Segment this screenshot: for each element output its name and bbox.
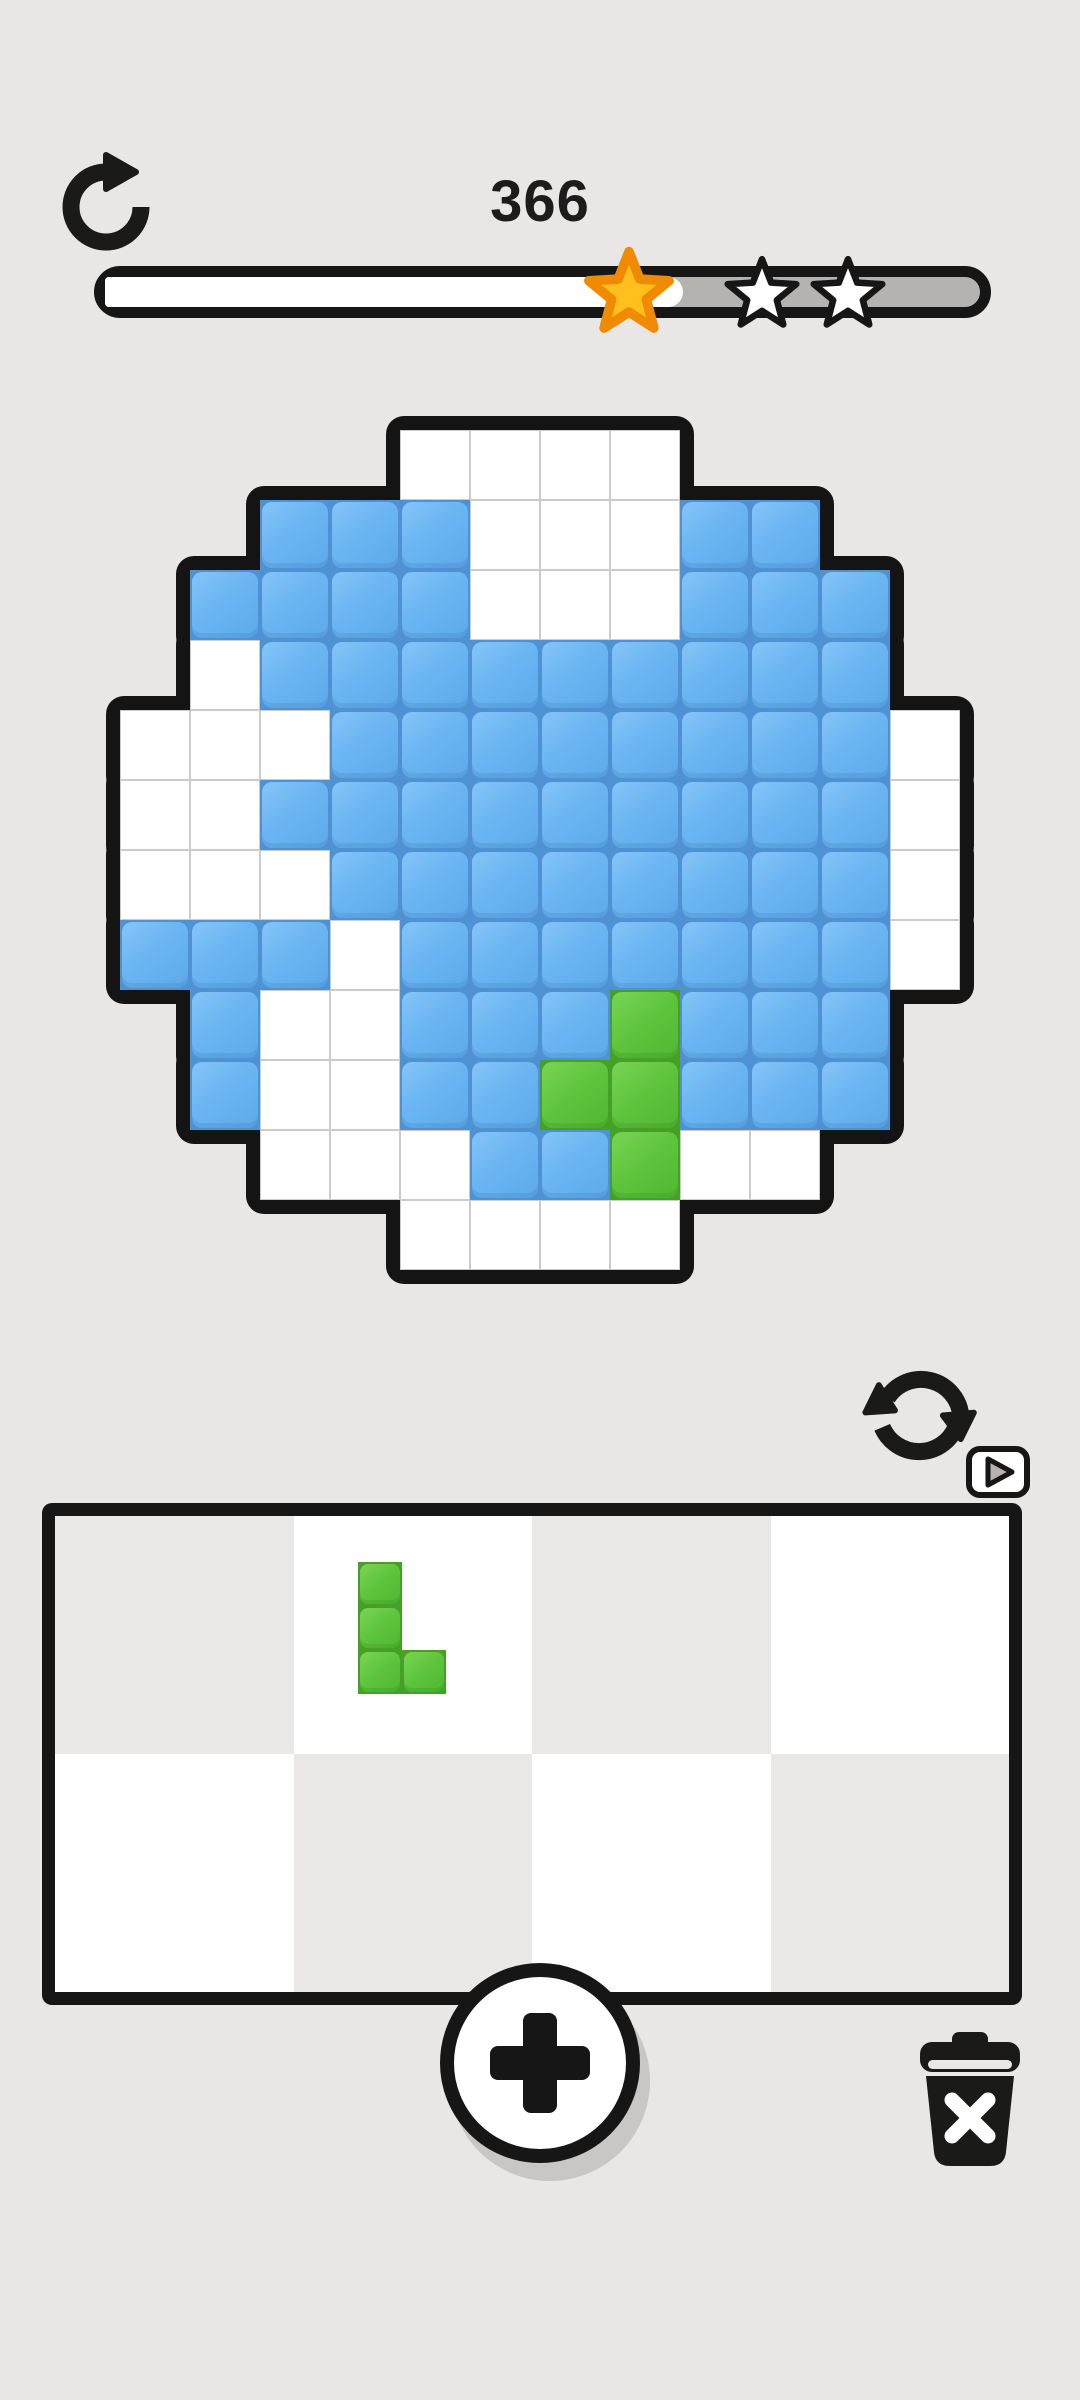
board-cell <box>260 920 330 990</box>
board-cell <box>260 1130 330 1200</box>
tray-slot <box>294 1516 533 1754</box>
progress-bar <box>94 266 991 318</box>
board-cell <box>330 780 400 850</box>
tray-grid <box>55 1516 1009 1992</box>
board-cell <box>540 780 610 850</box>
board-cell <box>190 1060 260 1130</box>
trash-button[interactable] <box>910 2032 1030 2168</box>
board-cell <box>610 710 680 780</box>
board-cell <box>750 570 820 640</box>
tray-slot <box>294 1754 533 1992</box>
trash-icon <box>910 2032 1030 2168</box>
board-cell <box>540 1130 610 1200</box>
board-cell <box>610 1130 680 1200</box>
board-cell <box>750 780 820 850</box>
board-cell <box>400 710 470 780</box>
board-cell <box>330 1060 400 1130</box>
board-cell <box>260 990 330 1060</box>
board-cell <box>400 430 470 500</box>
board-cell <box>190 990 260 1060</box>
board-cell <box>540 430 610 500</box>
board-cell <box>680 500 750 570</box>
board-cell <box>400 1130 470 1200</box>
board-cell <box>260 780 330 850</box>
board-cell <box>540 850 610 920</box>
board-cell <box>540 500 610 570</box>
board-cell <box>680 570 750 640</box>
board-cell <box>890 780 960 850</box>
board-cell <box>190 570 260 640</box>
tray-piece-block[interactable] <box>402 1650 446 1694</box>
board-cell <box>540 710 610 780</box>
score-label: 366 <box>0 168 1080 235</box>
board-cell <box>190 780 260 850</box>
tray-slot <box>55 1754 294 1992</box>
board-cell <box>890 710 960 780</box>
board-cell <box>470 570 540 640</box>
tray-slot <box>532 1754 771 1992</box>
board-cell <box>820 780 890 850</box>
board-cell <box>260 710 330 780</box>
board-cell <box>750 710 820 780</box>
board-cell <box>610 920 680 990</box>
board-cell <box>260 500 330 570</box>
board-cell <box>400 990 470 1060</box>
plus-icon <box>523 2013 557 2113</box>
board-cell <box>750 1060 820 1130</box>
board-cell <box>820 710 890 780</box>
board-cell <box>120 710 190 780</box>
tray-piece-block[interactable] <box>358 1650 402 1694</box>
board-cell <box>750 920 820 990</box>
board-cell <box>680 1060 750 1130</box>
board-cell <box>400 850 470 920</box>
board-cell <box>680 920 750 990</box>
game-screen: 366 <box>0 0 1080 2400</box>
tray-piece-block[interactable] <box>358 1562 402 1606</box>
board-cell <box>890 920 960 990</box>
tray-slot <box>532 1516 771 1754</box>
board-cell <box>120 850 190 920</box>
board-cell <box>470 1060 540 1130</box>
board-cell <box>610 640 680 710</box>
board-cell <box>470 850 540 920</box>
play-icon <box>972 1452 1024 1492</box>
board-cell <box>610 1200 680 1270</box>
board-cell <box>610 990 680 1060</box>
board-cell <box>540 640 610 710</box>
piece-tray <box>42 1503 1022 2005</box>
board-cell <box>470 500 540 570</box>
board-cell <box>540 990 610 1060</box>
board-cell <box>400 570 470 640</box>
board-cell <box>540 1060 610 1130</box>
rotate-piece-button[interactable] <box>856 1356 978 1468</box>
board-cell <box>610 780 680 850</box>
board-cell <box>470 1130 540 1200</box>
board-cell <box>470 1200 540 1270</box>
board-cell <box>750 850 820 920</box>
board-cell <box>330 640 400 710</box>
board-cell <box>330 990 400 1060</box>
board-cell <box>750 640 820 710</box>
board-cell <box>260 570 330 640</box>
board-cell <box>470 430 540 500</box>
board-cell <box>470 920 540 990</box>
board-cell <box>330 710 400 780</box>
board-cell <box>400 780 470 850</box>
board-cell <box>610 850 680 920</box>
board-cell <box>820 1060 890 1130</box>
board-cell <box>190 920 260 990</box>
board-cell <box>120 780 190 850</box>
board-cell <box>820 570 890 640</box>
board-cell <box>400 920 470 990</box>
board-cell <box>470 990 540 1060</box>
board-cell <box>680 640 750 710</box>
board-cell <box>680 780 750 850</box>
board-cell <box>400 1060 470 1130</box>
board-cell <box>820 990 890 1060</box>
board-cell <box>190 710 260 780</box>
board-cell <box>680 710 750 780</box>
board-cell <box>610 1060 680 1130</box>
board-cell <box>400 640 470 710</box>
board-cell <box>470 710 540 780</box>
progress-fill <box>105 277 683 307</box>
board-cell <box>260 640 330 710</box>
board-cell <box>750 500 820 570</box>
board-cell <box>540 570 610 640</box>
board-cell <box>330 500 400 570</box>
board-cell <box>680 1130 750 1200</box>
board-cell <box>610 430 680 500</box>
board-cell <box>470 780 540 850</box>
board-cell <box>540 920 610 990</box>
board-cell <box>120 920 190 990</box>
board-cell <box>400 1200 470 1270</box>
tutorial-play-button[interactable] <box>966 1446 1030 1498</box>
tray-slot <box>771 1516 1010 1754</box>
board-cell <box>750 1130 820 1200</box>
board-cell <box>820 850 890 920</box>
rotate-sync-icon <box>856 1356 978 1468</box>
board-cell <box>260 1060 330 1130</box>
board-cell <box>610 570 680 640</box>
board-cell <box>260 850 330 920</box>
board-cell <box>470 640 540 710</box>
board-cell <box>190 640 260 710</box>
board-cell <box>820 920 890 990</box>
board-cell <box>610 500 680 570</box>
board-cell <box>330 1130 400 1200</box>
board-cell <box>400 500 470 570</box>
tray-piece-block[interactable] <box>358 1606 402 1650</box>
add-piece-button[interactable] <box>440 1963 640 2163</box>
board-cell <box>540 1200 610 1270</box>
board-cell <box>330 850 400 920</box>
board-cell <box>750 990 820 1060</box>
board-cell <box>330 570 400 640</box>
board-cell <box>680 990 750 1060</box>
board-cell <box>330 920 400 990</box>
tray-slot <box>55 1516 294 1754</box>
tray-slot <box>771 1754 1010 1992</box>
board-cell <box>890 850 960 920</box>
board-cell <box>680 850 750 920</box>
board-cell <box>190 850 260 920</box>
board-cell <box>820 640 890 710</box>
